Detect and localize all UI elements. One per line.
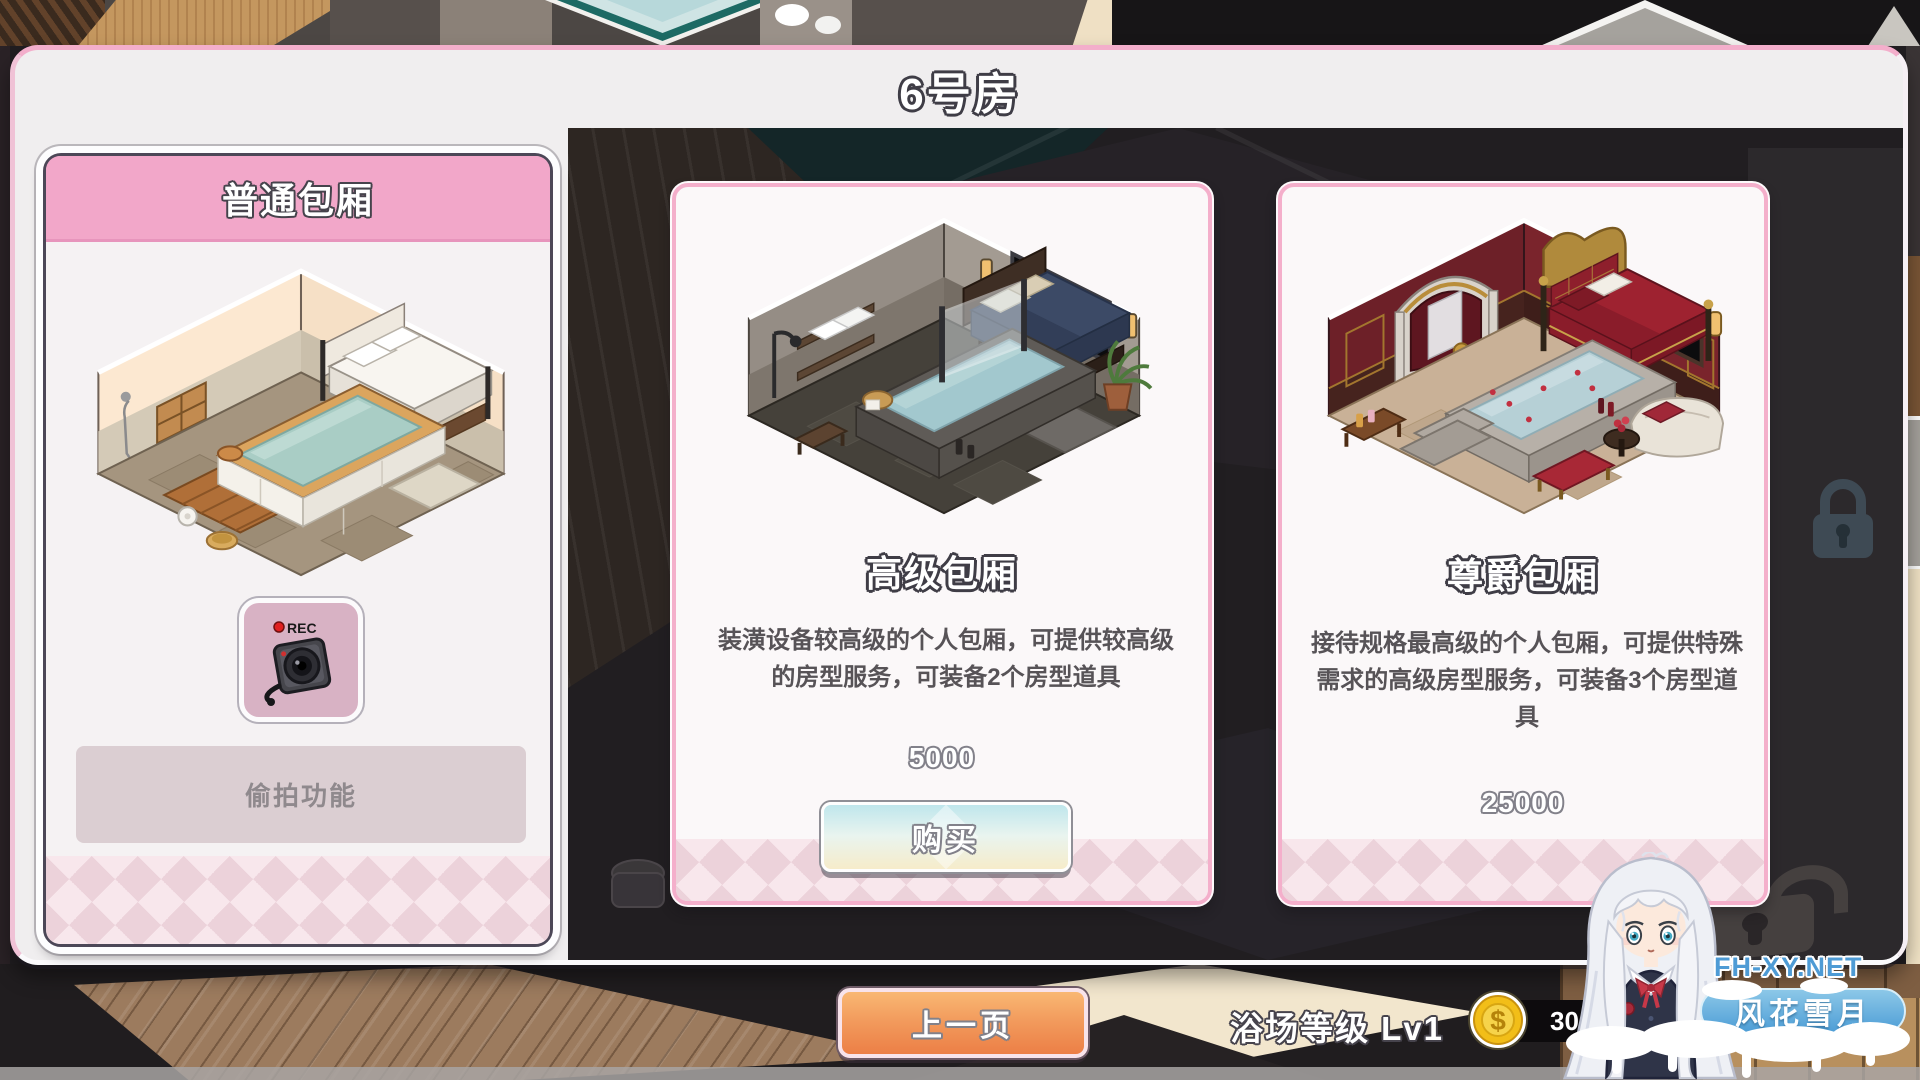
spy-camera-icon: REC	[253, 612, 349, 708]
coin-symbol: $	[1490, 1005, 1506, 1036]
icicle-decoration	[1866, 1048, 1875, 1066]
background-left-scene	[0, 46, 10, 964]
card-premium-title: 高级包厢	[676, 545, 1208, 597]
card-royal-title: 尊爵包厢	[1282, 547, 1764, 599]
dialog-title: 6号房	[0, 58, 1920, 122]
card-premium-price: 5000	[676, 742, 1208, 774]
rec-label: REC	[287, 620, 317, 636]
card-royal-room: 尊爵包厢 接待规格最高级的个人包厢，可提供特殊需求的高级房型服务，可装备3个房型…	[1278, 183, 1768, 905]
buy-button[interactable]: 购买	[821, 802, 1071, 872]
room-illustration-normal	[68, 242, 534, 586]
game-screen: 6号房 普通包厢	[0, 0, 1920, 1080]
room-illustration-premium	[702, 197, 1186, 519]
icicle-decoration	[1812, 1050, 1821, 1072]
card-premium-description: 装潢设备较高级的个人包厢，可提供较高级的房型服务，可装备2个房型道具	[716, 622, 1176, 696]
card-royal-description: 接待规格最高级的个人包厢，可提供特殊需求的高级房型服务，可装备3个房型道具	[1307, 625, 1747, 736]
room-illustration-royal	[1290, 197, 1758, 519]
snow-decoration	[1702, 980, 1762, 1000]
card-normal-title: 普通包厢	[46, 156, 550, 242]
feature-label: 偷拍功能	[245, 776, 357, 813]
icicle-decoration	[1668, 1052, 1677, 1072]
diamond-pattern-band	[46, 856, 550, 944]
buy-button-label: 购买	[912, 815, 980, 859]
snow-decoration	[1800, 978, 1848, 994]
background-right-scene	[1906, 46, 1920, 964]
wood-floor	[30, 964, 910, 1080]
spy-camera-button[interactable]: REC	[239, 598, 363, 722]
feature-button[interactable]: 偷拍功能	[76, 746, 526, 843]
card-premium-room: 高级包厢 装潢设备较高级的个人包厢，可提供较高级的房型服务，可装备2个房型道具 …	[672, 183, 1212, 905]
background-top-scene	[0, 0, 1920, 46]
lock-icon	[1803, 468, 1883, 568]
gold-coin-icon: $	[1466, 988, 1530, 1052]
card-royal-price: 25000	[1282, 787, 1764, 819]
previous-page-label: 上一页	[912, 1001, 1014, 1045]
watermark-site-text: FH-XY.NET	[1714, 952, 1863, 983]
card-normal-room: 普通包厢	[43, 153, 553, 947]
previous-page-button[interactable]: 上一页	[838, 988, 1088, 1058]
icicle-decoration	[1742, 1052, 1751, 1078]
icicle-decoration	[1612, 1048, 1621, 1074]
